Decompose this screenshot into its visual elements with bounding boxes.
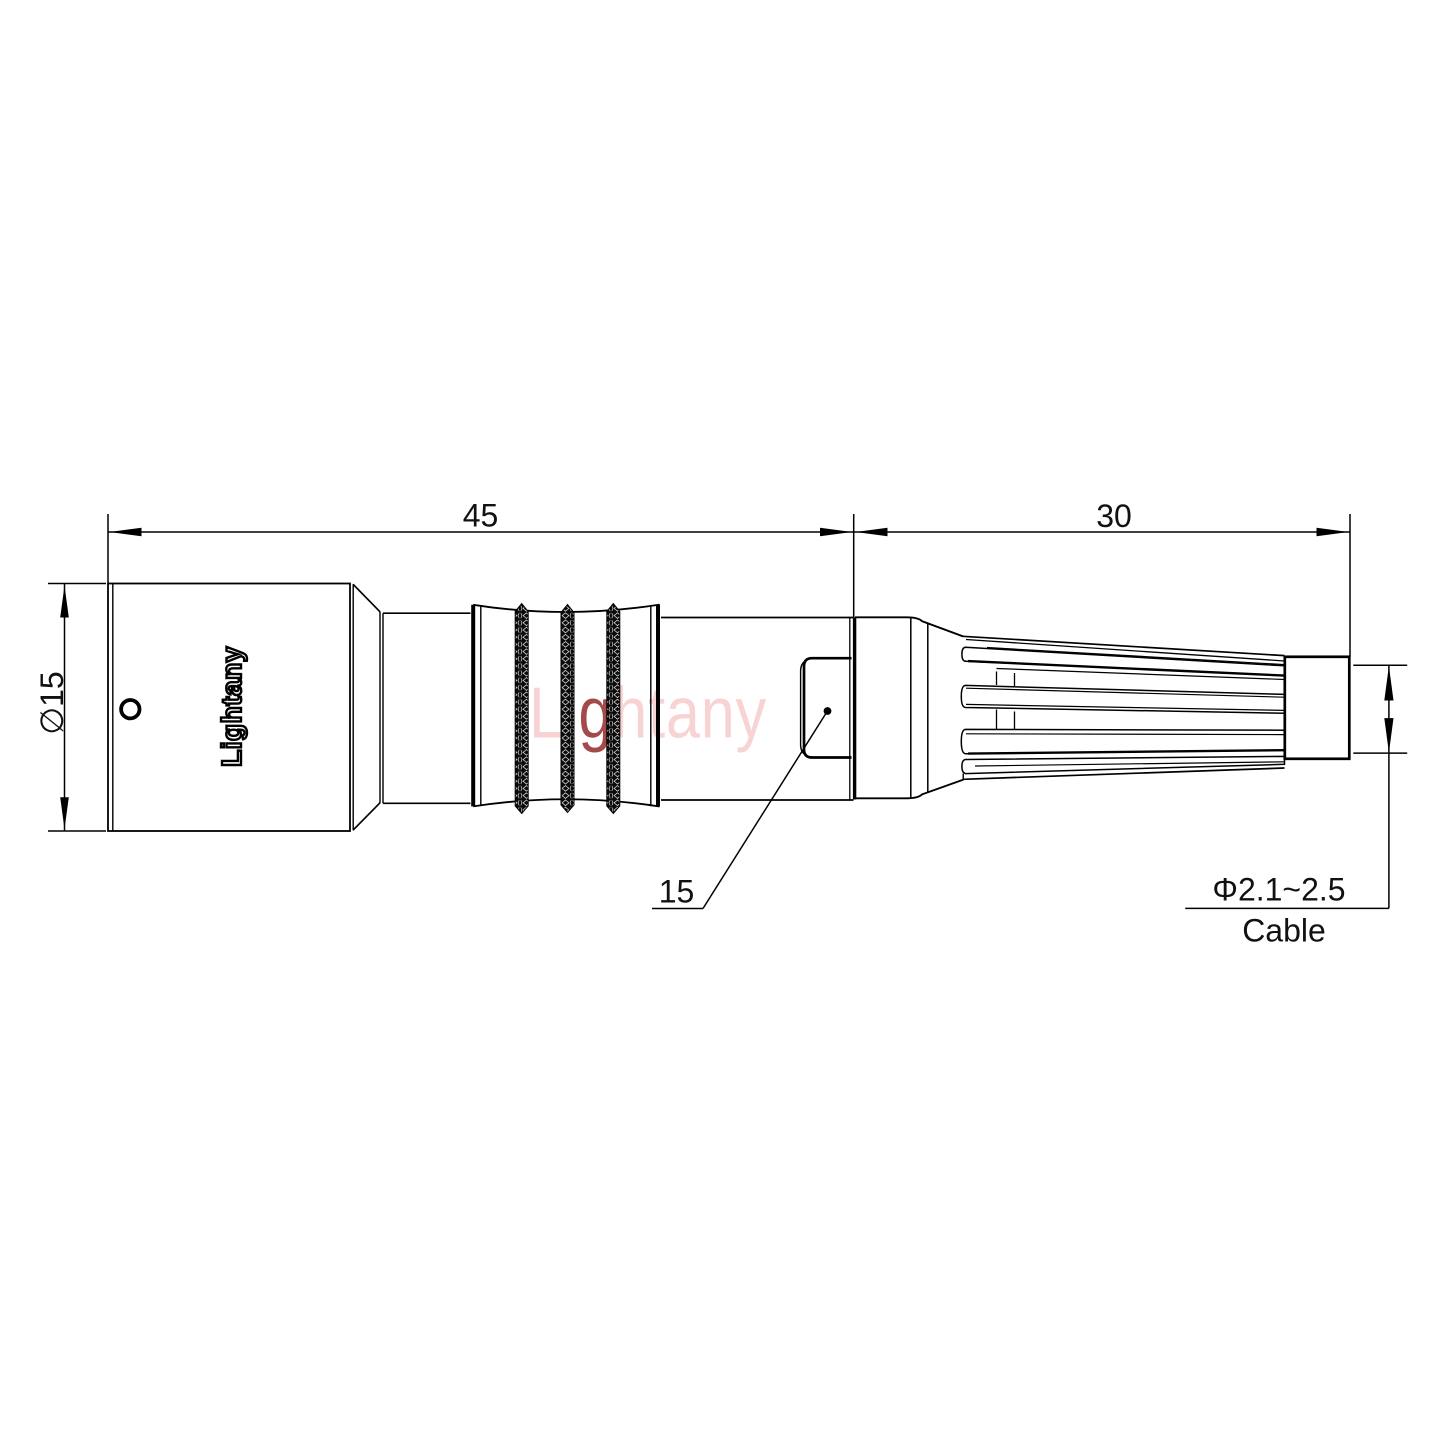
svg-text:Cable: Cable (1242, 913, 1326, 949)
svg-text:Φ2.1~2.5: Φ2.1~2.5 (1212, 871, 1345, 907)
svg-text:∅15: ∅15 (34, 671, 70, 734)
svg-text:15: 15 (659, 874, 695, 910)
svg-text:Lightany: Lightany (216, 646, 247, 767)
svg-text:30: 30 (1096, 498, 1132, 534)
svg-text:45: 45 (463, 498, 499, 534)
